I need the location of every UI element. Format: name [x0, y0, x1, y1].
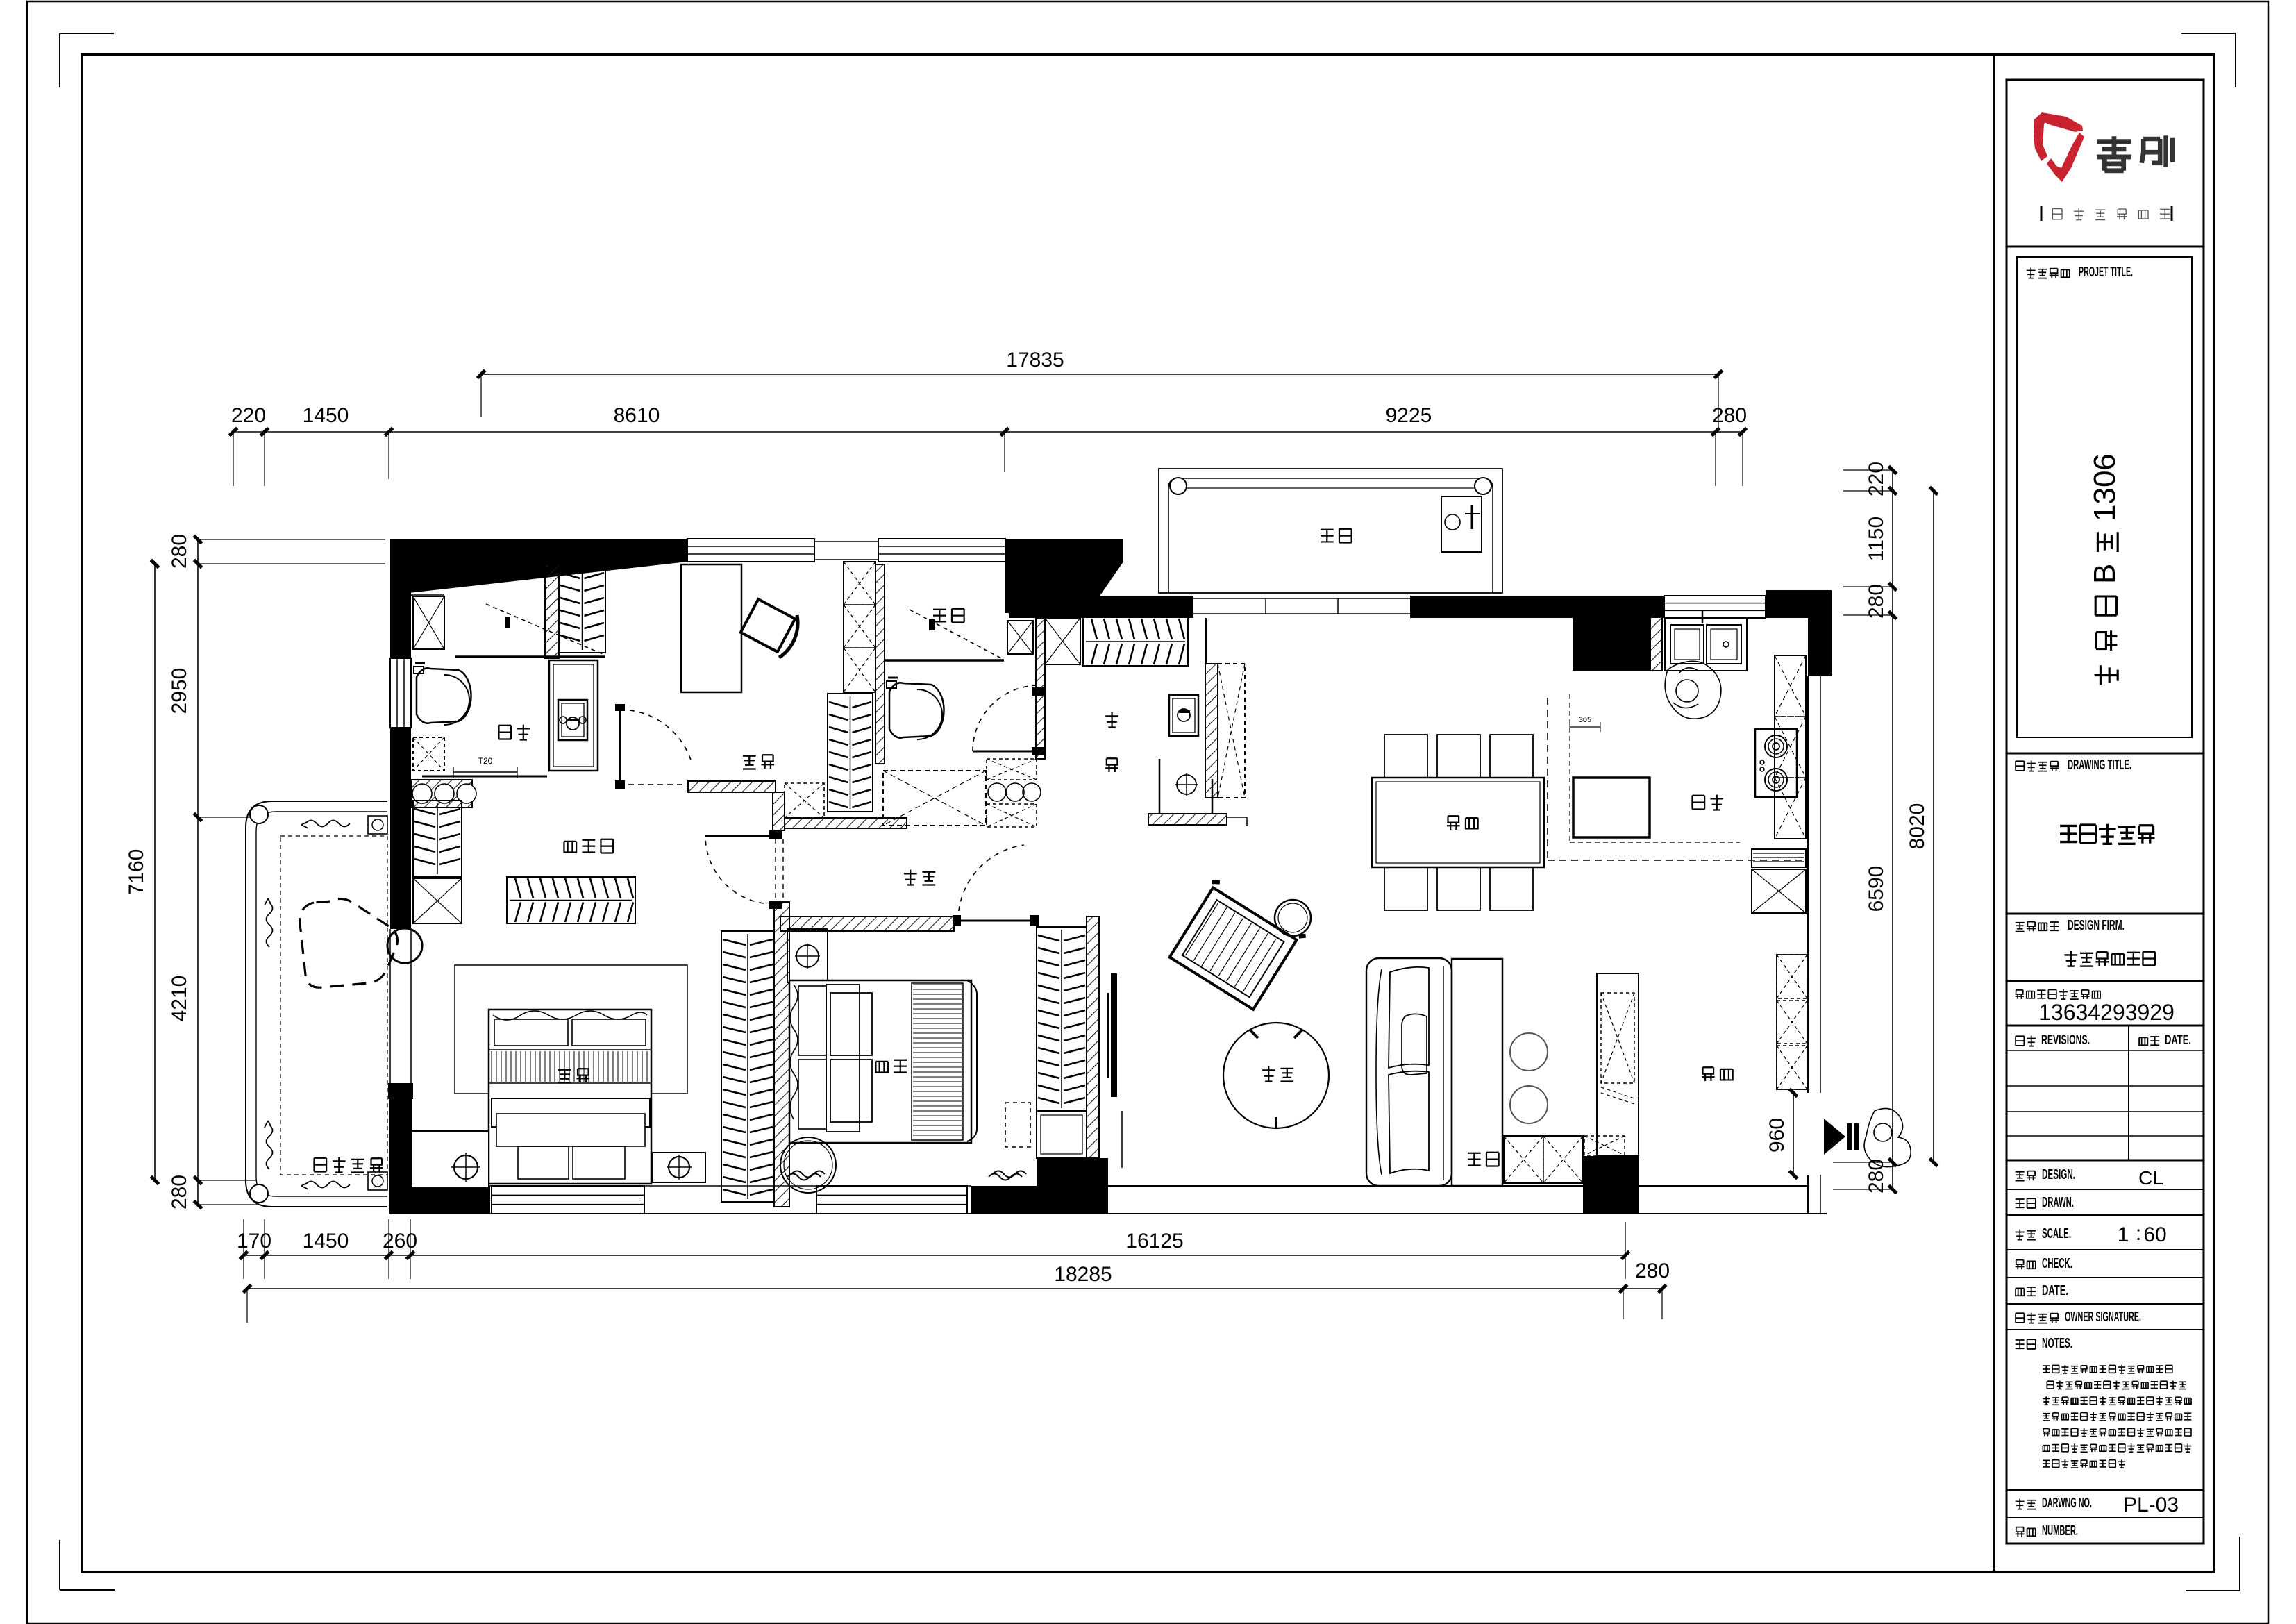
svg-text:960: 960	[1766, 1118, 1788, 1153]
svg-text:SCALE.: SCALE.	[2042, 1226, 2071, 1241]
svg-text:4210: 4210	[168, 976, 191, 1022]
svg-text:DRAWN.: DRAWN.	[2042, 1195, 2074, 1210]
svg-text:280: 280	[1865, 584, 1888, 619]
svg-text:DRAWING TITLE.: DRAWING TITLE.	[2068, 757, 2131, 773]
svg-text:16125: 16125	[1125, 1230, 1183, 1253]
svg-text:220: 220	[231, 404, 266, 427]
svg-text:1150: 1150	[1865, 517, 1888, 562]
svg-text:PROJET TITLE.: PROJET TITLE.	[2079, 265, 2133, 280]
svg-text:220: 220	[1865, 462, 1888, 496]
svg-text:170: 170	[237, 1230, 271, 1253]
svg-text:CL: CL	[2138, 1167, 2163, 1189]
svg-text:OWNER SIGNATURE.: OWNER SIGNATURE.	[2065, 1309, 2141, 1325]
svg-text:DARWNG NO.: DARWNG NO.	[2042, 1496, 2092, 1511]
svg-text:CHECK.: CHECK.	[2042, 1256, 2072, 1271]
svg-text:DATE.: DATE.	[2165, 1033, 2191, 1048]
svg-text:NOTES.: NOTES.	[2042, 1336, 2072, 1351]
svg-text:B: B	[2088, 564, 2122, 584]
svg-text:280: 280	[168, 534, 191, 569]
svg-text:305: 305	[1579, 716, 1591, 724]
svg-text:1450: 1450	[303, 1230, 349, 1253]
svg-text:1: 1	[2118, 1223, 2129, 1246]
svg-text:13634293929: 13634293929	[2038, 1000, 2175, 1025]
svg-text:1450: 1450	[303, 404, 349, 427]
svg-text:DESIGN.: DESIGN.	[2042, 1167, 2075, 1182]
svg-text:7160: 7160	[125, 849, 148, 896]
svg-text:60: 60	[2143, 1223, 2166, 1246]
svg-text:DESIGN FIRM.: DESIGN FIRM.	[2068, 918, 2125, 933]
svg-text:280: 280	[1635, 1259, 1670, 1282]
svg-text:8020: 8020	[1906, 803, 1929, 850]
svg-text::: :	[2136, 1222, 2141, 1245]
svg-text:NUMBER.: NUMBER.	[2042, 1523, 2078, 1539]
svg-text:DATE.: DATE.	[2042, 1283, 2068, 1298]
svg-text:280: 280	[1712, 404, 1747, 427]
svg-text:PL-03: PL-03	[2123, 1493, 2179, 1516]
svg-text:17835: 17835	[1006, 349, 1064, 371]
svg-text:280: 280	[168, 1175, 191, 1209]
svg-text:8610: 8610	[614, 404, 660, 427]
svg-text:9225: 9225	[1386, 404, 1432, 427]
svg-text:REVISIONS.: REVISIONS.	[2041, 1033, 2090, 1048]
svg-text:2950: 2950	[168, 668, 191, 714]
svg-text:6590: 6590	[1865, 866, 1888, 912]
svg-text:260: 260	[383, 1230, 417, 1253]
svg-text:18285: 18285	[1054, 1263, 1112, 1286]
svg-text:1306: 1306	[2088, 453, 2122, 521]
svg-text:T20: T20	[478, 756, 493, 766]
